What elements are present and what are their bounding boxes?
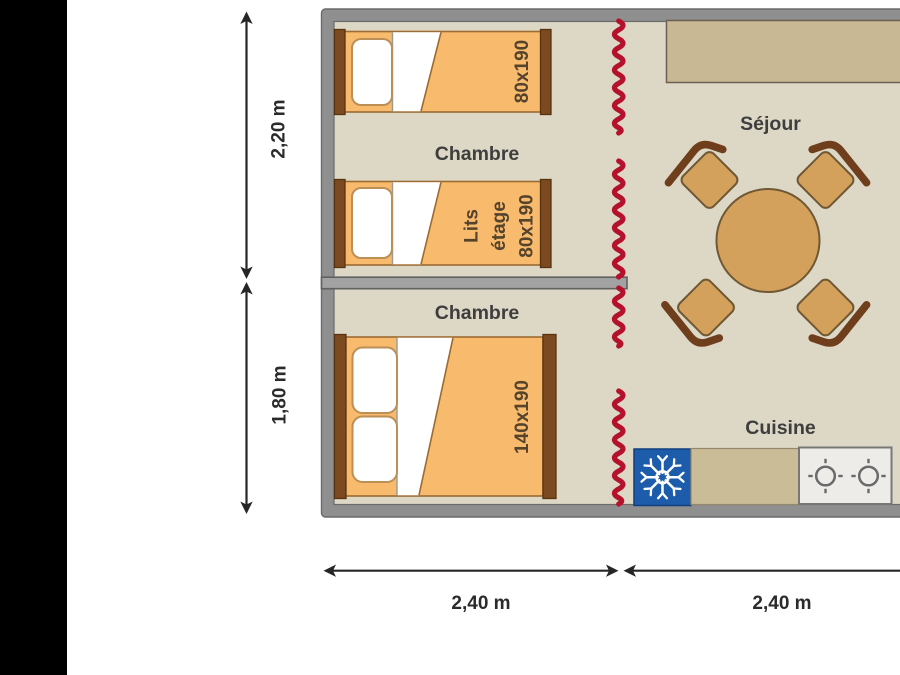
svg-text:2,40 m: 2,40 m xyxy=(451,593,510,614)
svg-text:2,20 m: 2,20 m xyxy=(269,99,290,158)
svg-text:80x190: 80x190 xyxy=(512,40,533,103)
svg-text:étage: étage xyxy=(489,201,510,251)
svg-text:140x190: 140x190 xyxy=(512,380,533,454)
svg-text:Lits: Lits xyxy=(462,209,483,243)
svg-text:80x190: 80x190 xyxy=(517,194,538,257)
svg-text:Séjour: Séjour xyxy=(740,113,801,135)
svg-text:1,80 m: 1,80 m xyxy=(270,365,291,424)
svg-text:Chambre: Chambre xyxy=(435,302,520,324)
svg-text:Chambre: Chambre xyxy=(435,143,520,165)
svg-text:2,40 m: 2,40 m xyxy=(752,593,811,614)
svg-text:Cuisine: Cuisine xyxy=(745,417,816,439)
